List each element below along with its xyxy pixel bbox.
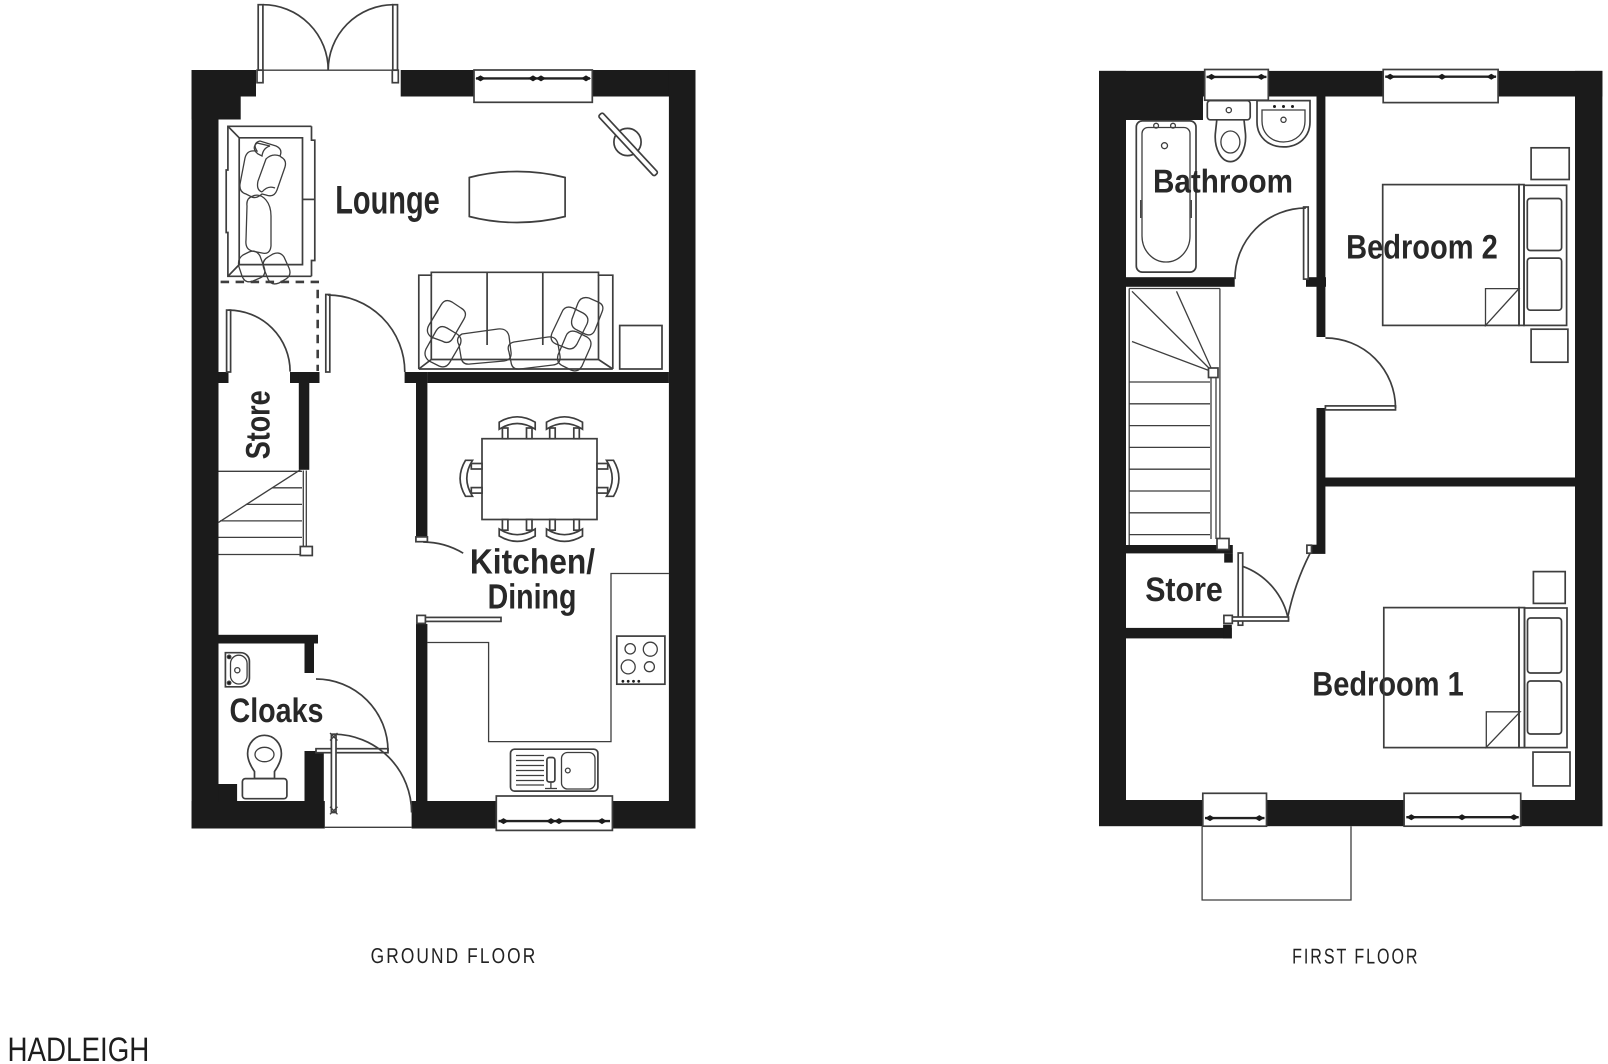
- svg-text:HADLEIGH: HADLEIGH: [8, 1031, 150, 1064]
- svg-text:Dining: Dining: [488, 578, 577, 617]
- svg-text:GROUND FLOOR: GROUND FLOOR: [371, 944, 538, 968]
- svg-text:Store: Store: [1145, 571, 1223, 609]
- svg-text:Lounge: Lounge: [335, 179, 440, 223]
- svg-text:Cloaks: Cloaks: [230, 692, 324, 730]
- svg-text:Kitchen/: Kitchen/: [470, 543, 596, 582]
- svg-text:FIRST FLOOR: FIRST FLOOR: [1292, 945, 1419, 969]
- svg-text:Bedroom 2: Bedroom 2: [1346, 229, 1498, 267]
- svg-text:Store: Store: [240, 390, 278, 459]
- svg-text:Bathroom: Bathroom: [1153, 163, 1293, 200]
- svg-text:Bedroom 1: Bedroom 1: [1312, 666, 1463, 704]
